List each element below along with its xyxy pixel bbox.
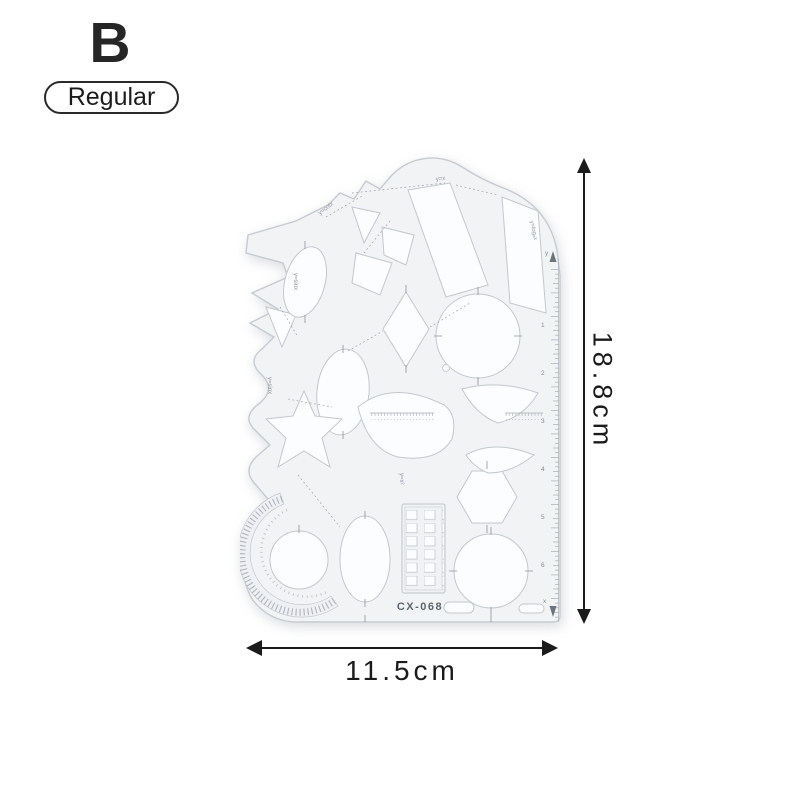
- height-dimension: 18.8cm: [576, 158, 592, 624]
- height-dimension-label: 18.8cm: [587, 332, 618, 451]
- ruler-number: 6: [541, 562, 545, 569]
- curve-label: y=sinx: [266, 377, 272, 394]
- stencil-template-image: 1 2 3 4 5 6 y x y=x y=cotx y=logₐx: [240, 155, 570, 625]
- variant-badge-label: Regular: [68, 83, 156, 112]
- ruler-number: 2: [541, 370, 545, 377]
- width-dimension: 11.5cm: [246, 640, 558, 692]
- ruler-number: 4: [541, 466, 545, 473]
- product-photo: B Regular: [0, 0, 800, 800]
- arrow-right-icon: [542, 640, 558, 656]
- curve-label: y=sinx: [292, 273, 298, 290]
- dimension-line-vertical: [583, 169, 585, 613]
- ruler-number: 3: [541, 418, 545, 425]
- square-grid: [402, 504, 445, 593]
- arrow-down-icon: [577, 609, 591, 624]
- curve-label: y=x²: [398, 473, 404, 485]
- variant-badge: Regular: [44, 81, 179, 114]
- ruler-number: 5: [541, 514, 545, 521]
- ruler-number: 1: [541, 322, 545, 329]
- variant-letter: B: [84, 14, 136, 74]
- width-dimension-label: 11.5cm: [345, 655, 459, 687]
- model-number: CX-068: [397, 601, 443, 613]
- dimension-line-horizontal: [257, 647, 547, 649]
